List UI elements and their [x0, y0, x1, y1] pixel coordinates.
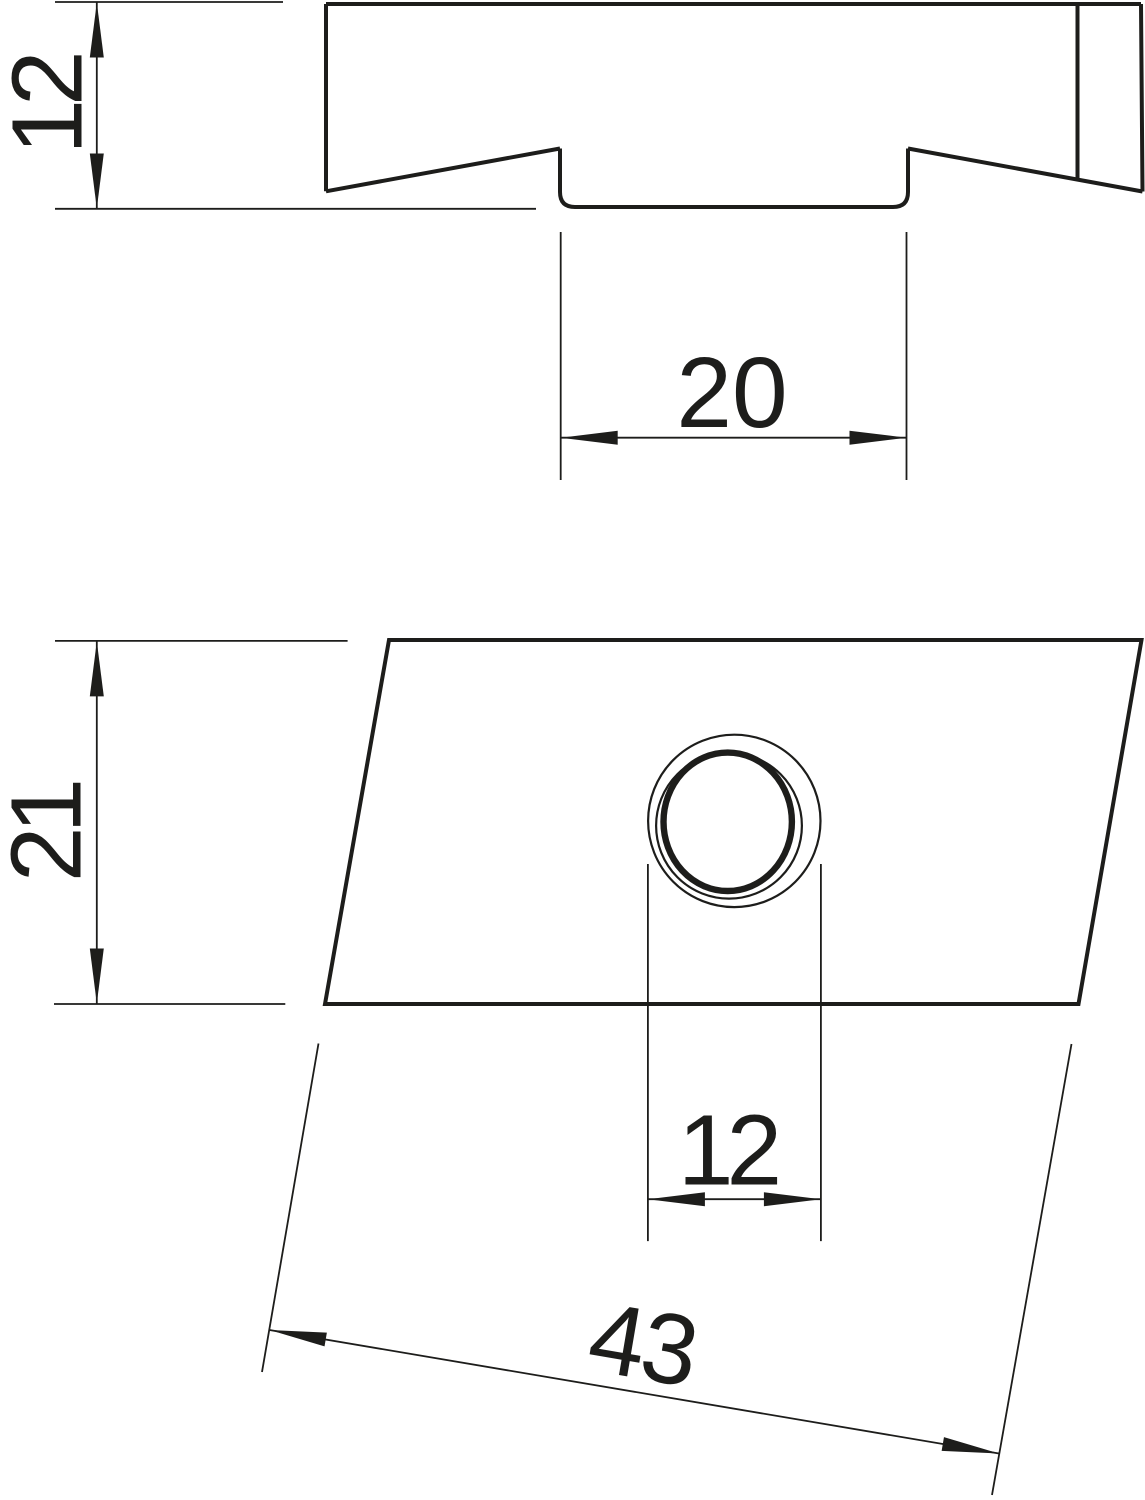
svg-text:12: 12	[678, 1095, 778, 1207]
svg-text:43: 43	[581, 1280, 703, 1408]
svg-text:21: 21	[0, 783, 102, 883]
svg-text:20: 20	[676, 337, 787, 449]
svg-text:12: 12	[0, 55, 104, 155]
